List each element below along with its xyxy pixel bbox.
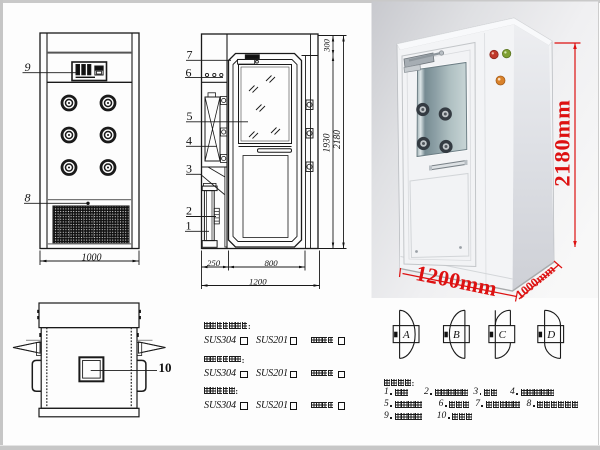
svg-text:9: 9 <box>25 60 31 74</box>
svg-text:2: 2 <box>186 204 192 218</box>
svg-text:8: 8 <box>25 191 31 205</box>
svg-text:A: A <box>402 329 410 341</box>
svg-text:1000: 1000 <box>82 252 102 263</box>
svg-text:250: 250 <box>207 258 221 268</box>
svg-text:3: 3 <box>186 162 192 176</box>
svg-text:6: 6 <box>186 66 192 80</box>
svg-text:C: C <box>499 329 507 341</box>
svg-text:D: D <box>546 329 555 341</box>
svg-text:300: 300 <box>322 38 332 53</box>
svg-text:10: 10 <box>159 360 172 375</box>
svg-text:5: 5 <box>187 109 193 123</box>
svg-text:1200: 1200 <box>249 277 267 287</box>
svg-text:1930: 1930 <box>323 133 333 152</box>
svg-text:2180: 2180 <box>333 130 343 149</box>
svg-text:4: 4 <box>186 134 192 148</box>
svg-text:B: B <box>453 329 460 341</box>
svg-text:800: 800 <box>265 258 279 268</box>
svg-text:7: 7 <box>187 48 193 62</box>
svg-text:1: 1 <box>186 219 192 233</box>
